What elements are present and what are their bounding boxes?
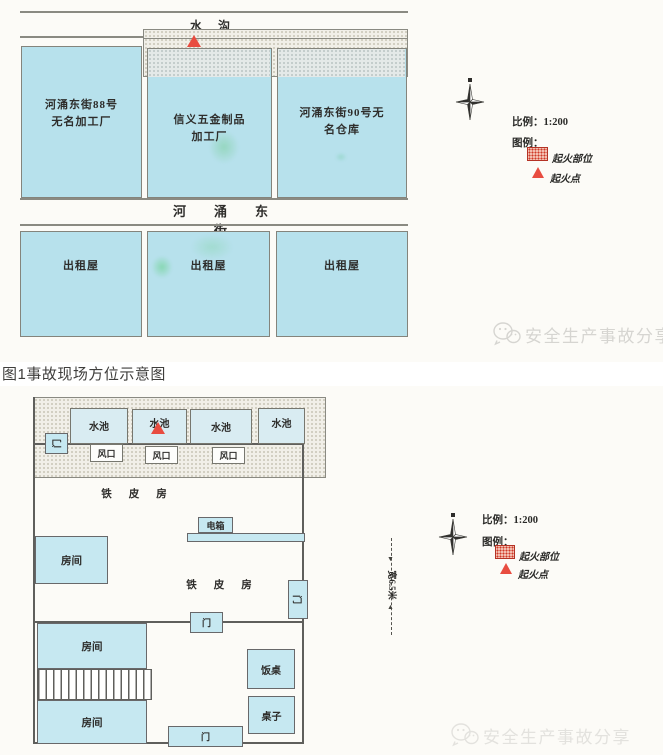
counter-bar [187,533,305,542]
hatch-inner-line [143,38,408,39]
water-pool-4: 水池 [258,408,305,444]
iron-house-label-2: 铁皮房 [173,577,273,592]
rental-3-label: 出租屋 [277,258,407,275]
iron-house-label-1: 铁皮房 [88,486,188,501]
door-right-label: 门 [291,595,304,604]
dimension-arrow-down: ▲ [387,604,394,611]
rental-house-2: 出租屋 [147,231,270,337]
building-xinyi-line2: 加工厂 [148,129,271,146]
door-middle-label: 门 [202,616,211,629]
legend-fire-point-label: 起火点 [550,170,580,185]
rental-house-3: 出租屋 [276,231,408,337]
vent-1: 风口 [90,444,123,462]
building-88-line1: 河涌东街88号 [22,97,141,114]
building-88-label: 河涌东街88号 无名加工厂 [22,97,141,130]
electric-box-label: 电箱 [206,519,224,532]
xinyi-fire-area-hatch [148,49,270,77]
ditch-south-line-left [20,36,143,38]
room-3-label: 房间 [82,715,103,730]
compass-rose-icon [437,513,469,557]
table-label: 桌子 [262,708,282,723]
water-pool-3: 水池 [190,409,252,444]
building-warehouse-label: 河涌东街90号无 名仓库 [278,105,406,138]
door-bottom-label: 门 [201,730,210,743]
scale-label: 比例：1:200 [512,114,568,129]
watermark-text: 安全生产事故分享 [483,723,631,748]
building-warehouse-line2: 名仓库 [278,122,406,139]
wechat-logo-icon [450,722,480,747]
street-south-line [20,224,408,226]
room-2-label: 房间 [82,639,103,654]
legend-fire-area-label: 起火部位 [552,150,592,165]
ditch-north-line [20,11,408,13]
room-1-label: 房间 [61,553,82,568]
building-warehouse-line1: 河涌东街90号无 [278,105,406,122]
pool-1-label: 水池 [71,418,127,433]
warehouse-fire-area-hatch [278,49,405,77]
pool-3-label: 水池 [191,419,251,434]
compass-rose-icon [454,78,486,122]
site-plan-photo: 水沟 河涌东街88号 无名加工厂 信义五金制品 加工厂 河涌东街90号无 名仓库… [0,0,663,362]
legend-fire-area-swatch [527,147,548,161]
article-image: { "caption": "图1事故现场方位示意图", "watermark":… [0,0,663,755]
fire-point-icon [187,35,201,47]
building-88-line2: 无名加工厂 [22,114,141,131]
floor-plan-photo: 水池 水池 水池 水池 门 风口 风口 风口 铁皮房 铁皮房 电箱 房间 门 门 [0,386,663,755]
vent-3: 风口 [212,447,245,464]
figure-caption: 图1事故现场方位示意图 [2,363,166,384]
vent-1-label: 风口 [97,447,115,460]
legend-fire-point-label: 起火点 [518,566,548,581]
street-north-line [20,198,408,200]
dining-table-label: 饭桌 [261,662,281,677]
electric-box: 电箱 [198,517,233,533]
room-2: 房间 [37,623,147,669]
vent-2-label: 风口 [152,449,170,462]
watermark-text: 安全生产事故分享 [525,322,663,347]
room-1: 房间 [35,536,108,584]
building-xinyi-factory: 信义五金制品 加工厂 [147,48,272,198]
dining-table: 饭桌 [247,649,295,689]
scale-label: 比例：1:200 [482,512,538,527]
vent-2: 风口 [145,446,178,464]
stairs [37,669,152,700]
door-right: 门 [288,580,308,619]
stain-blob [333,151,349,163]
door-bottom: 门 [168,726,243,747]
room-3: 房间 [37,700,147,744]
building-xinyi-label: 信义五金制品 加工厂 [148,112,271,145]
legend-fire-point-swatch [500,563,512,574]
water-pool-1: 水池 [70,408,128,444]
door-middle: 门 [190,612,223,633]
door-left: 门 [45,433,68,454]
pool-4-label: 水池 [259,415,304,430]
building-xinyi-line1: 信义五金制品 [148,112,271,129]
fire-point-icon [151,422,165,434]
legend-fire-area-swatch [495,545,515,559]
rental-house-1: 出租屋 [20,231,142,337]
rental-2-label: 出租屋 [148,258,269,275]
vent-3-label: 风口 [219,449,237,462]
legend-fire-point-swatch [532,167,544,178]
wechat-logo-icon [492,321,522,346]
table: 桌子 [248,696,295,734]
door-left-label: 门 [50,439,63,448]
legend-fire-area-label: 起火部位 [519,548,559,563]
building-warehouse-90: 河涌东街90号无 名仓库 [277,48,407,198]
building-factory-88: 河涌东街88号 无名加工厂 [21,46,142,198]
rental-1-label: 出租屋 [21,258,141,275]
